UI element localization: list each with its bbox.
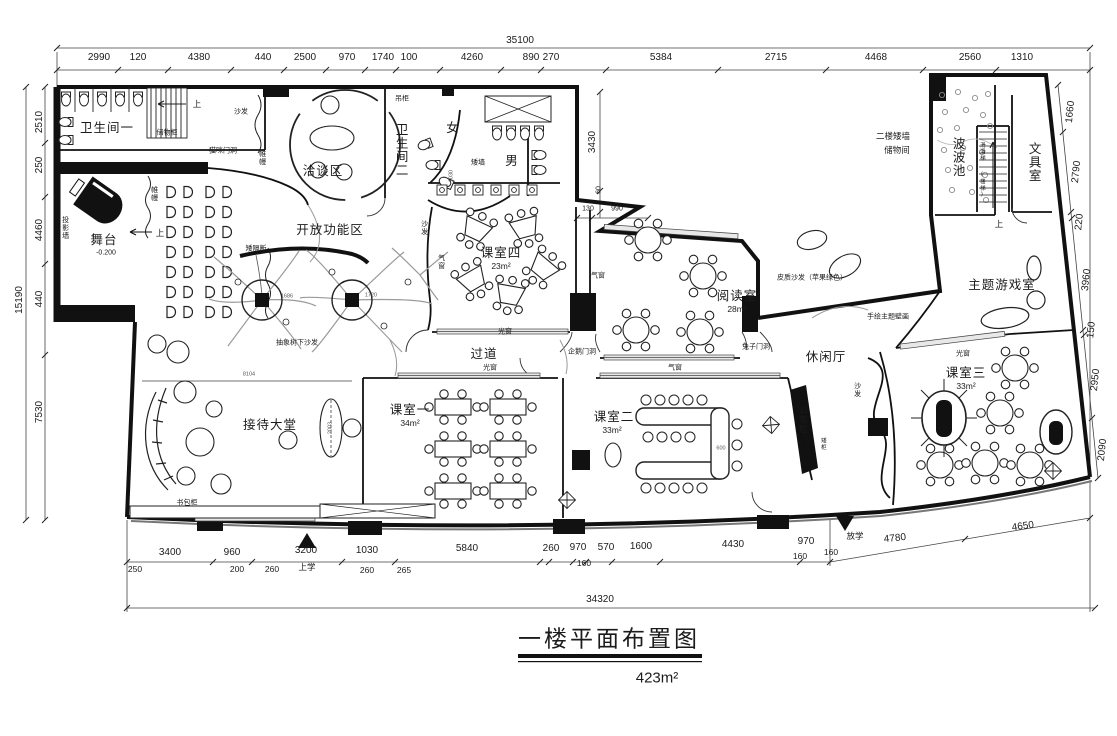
dim-bottom-5: 260 bbox=[543, 544, 560, 554]
room-classroom1-area: 34m² bbox=[400, 419, 419, 428]
dim-bottom-total: 34320 bbox=[586, 595, 614, 605]
negotiation-furniture bbox=[255, 90, 400, 200]
dim-bottom-10: 970 bbox=[798, 537, 815, 547]
ann-lightwin-2: 光窗 bbox=[483, 365, 497, 372]
dim-bottom-3: 1030 bbox=[356, 546, 378, 556]
ann-slide-stairs: (楼梯) bbox=[978, 172, 984, 199]
dim-left-1: 250 bbox=[35, 157, 45, 174]
dim-top-10: 270 bbox=[543, 53, 560, 63]
dim-right-4: 150 bbox=[1086, 321, 1098, 339]
dim-top-3: 440 bbox=[255, 53, 272, 63]
dim-right-2: 220 bbox=[1074, 213, 1086, 231]
room-classroom4-area: 23m² bbox=[491, 262, 510, 271]
dim-bsub-1: 200 bbox=[230, 565, 244, 574]
room-classroom2: 课室二 bbox=[594, 411, 635, 424]
dim-top-total: 35100 bbox=[506, 36, 534, 46]
ann-lightwin-1: 光窗 bbox=[498, 329, 512, 336]
dim-bottom-8: 1600 bbox=[630, 542, 652, 552]
ann-projection-wall: 投影墙 bbox=[61, 216, 68, 240]
room-reading: 阅读室 bbox=[717, 290, 758, 303]
dim-top-7: 100 bbox=[401, 53, 418, 63]
room-male: 男 bbox=[505, 155, 519, 168]
dim-top-12: 2715 bbox=[765, 53, 787, 63]
ann-tree-sofa: 抽象树下沙发 bbox=[276, 340, 318, 347]
dim-bottom-7: 570 bbox=[598, 543, 615, 553]
dim-1030: 1030 bbox=[449, 170, 455, 182]
stage-level: -0.200 bbox=[96, 250, 116, 257]
ann-storage-cabinet: 储物柜 bbox=[157, 130, 178, 137]
page-title: 一楼平面布置图 bbox=[518, 628, 700, 651]
dim-bsub-7: 160 bbox=[824, 548, 838, 557]
dim-bottom-2: 3200 bbox=[295, 546, 317, 556]
dim-top-9: 890 bbox=[523, 53, 540, 63]
dim-bottom-9: 4430 bbox=[722, 540, 744, 550]
dim-bottom-1: 960 bbox=[224, 548, 241, 558]
room-corridor: 过道 bbox=[470, 348, 497, 361]
dim-top-6: 1740 bbox=[372, 53, 394, 63]
dim-top-15: 1310 bbox=[1011, 53, 1033, 63]
room-ballpit: 波波池 bbox=[950, 137, 963, 178]
room-reading-area: 28m² bbox=[727, 305, 746, 314]
gameroom-furniture bbox=[980, 256, 1045, 331]
dim-60: 60 bbox=[596, 186, 603, 194]
room-leisure: 休闲厅 bbox=[806, 351, 847, 364]
ann-rabbit-door: 兔子门洞 bbox=[742, 344, 770, 351]
room-bathroom1: 卫生间一 bbox=[80, 122, 134, 135]
dim-bottom-4: 5840 bbox=[456, 544, 478, 554]
dim-2003: 2003 bbox=[328, 422, 334, 434]
room-classroom2-area: 33m² bbox=[602, 426, 621, 435]
room-stationery: 文具室 bbox=[1026, 142, 1039, 183]
room-storage2f-line2: 储物间 bbox=[884, 146, 910, 155]
ann-sofa-2: 沙发 bbox=[420, 220, 427, 236]
ann-up-slide: 上 bbox=[995, 220, 1004, 229]
ann-airwin-2: 气窗 bbox=[591, 273, 605, 280]
dim-left-0: 2510 bbox=[35, 111, 45, 133]
dim-bottom-6: 970 bbox=[570, 543, 587, 553]
room-reception: 接待大堂 bbox=[243, 419, 297, 432]
total-area: 423m² bbox=[636, 671, 679, 686]
room-classroom4: 课室四 bbox=[481, 247, 522, 260]
title-underline bbox=[518, 654, 702, 662]
dim-top-1: 120 bbox=[130, 53, 147, 63]
dim-top-4: 2500 bbox=[294, 53, 316, 63]
room-classroom1: 课室一 bbox=[390, 404, 431, 417]
room-negotiation: 洽谈区 bbox=[303, 165, 344, 178]
dim-3430: 3430 bbox=[588, 131, 598, 153]
room-game: 主题游戏室 bbox=[968, 279, 1036, 292]
classroom1-tables bbox=[425, 390, 576, 509]
ann-penguin-door: 企鹅门洞 bbox=[568, 349, 596, 356]
ann-go-school: 上学 bbox=[298, 563, 315, 572]
dim-bsub-6: 160 bbox=[793, 552, 807, 561]
floor-plan-page: 35100 2990 120 4380 440 2500 970 1740 10… bbox=[0, 0, 1117, 736]
ann-sofa-3: 沙发 bbox=[853, 382, 860, 398]
room-classroom3-area: 33m² bbox=[956, 382, 975, 391]
bathroom1-fixtures bbox=[59, 87, 143, 145]
dim-1686: 1686 bbox=[281, 294, 293, 300]
dim-top-11: 5384 bbox=[650, 53, 672, 63]
low-partition bbox=[240, 248, 368, 295]
room-female: 女 bbox=[446, 122, 460, 135]
ann-low-partition: 矮隔断 bbox=[246, 246, 267, 253]
dim-left-4: 7530 bbox=[35, 401, 45, 423]
ann-up-stairs: 上 bbox=[193, 100, 202, 109]
room-open-area: 开放功能区 bbox=[296, 224, 364, 237]
room-classroom3: 课室三 bbox=[946, 367, 987, 380]
ann-mural: 手绘主题壁画 bbox=[867, 314, 909, 321]
ann-sofa-1: 沙发 bbox=[234, 109, 248, 116]
ann-curtain-1: 帷幔 bbox=[258, 150, 265, 166]
dim-left-3: 440 bbox=[35, 291, 45, 308]
classroom3-furniture bbox=[911, 347, 1072, 486]
dim-bsub-0: 250 bbox=[128, 565, 142, 574]
dim-top-0: 2990 bbox=[88, 53, 110, 63]
ann-slide: 滑滑梯 bbox=[978, 142, 984, 162]
dim-left-total: 15190 bbox=[15, 286, 25, 314]
dim-top-2: 4380 bbox=[188, 53, 210, 63]
ann-low-wall: 矮墙 bbox=[471, 160, 485, 167]
ann-cat-door: 猫咪门洞 bbox=[209, 148, 237, 155]
ann-bulletin: 公告栏 bbox=[799, 406, 808, 435]
ann-up-stage: 上 bbox=[156, 229, 165, 238]
ann-lightwin-3: 光窗 bbox=[956, 351, 970, 358]
dim-bsub-5: 160 bbox=[577, 559, 591, 568]
ann-leave-school: 放学 bbox=[846, 532, 863, 541]
dim-990: 990 bbox=[611, 206, 623, 213]
dim-bsub-4: 265 bbox=[397, 566, 411, 575]
room-stage: 舞台 bbox=[90, 234, 117, 247]
dim-600: 600 bbox=[716, 446, 725, 452]
dim-8104: 8104 bbox=[243, 372, 255, 378]
room-storage2f-line1: 二楼矮墙 bbox=[876, 132, 910, 141]
ann-bag-cabinet: 书包柜 bbox=[177, 500, 198, 507]
room-bathroom2: 卫生间二 bbox=[393, 123, 406, 177]
dim-130: 130 bbox=[582, 206, 594, 213]
dim-left-2: 4460 bbox=[35, 219, 45, 241]
ann-leather-sofa: 皮质沙发（苹果绿色） bbox=[777, 275, 847, 282]
dim-top-13: 4468 bbox=[865, 53, 887, 63]
dim-top-8: 4260 bbox=[461, 53, 483, 63]
ann-hanging-cabinet: 吊柜 bbox=[395, 96, 409, 103]
ann-curtain-2: 帷幔 bbox=[150, 186, 157, 202]
ann-low-cabinet: 矮柜 bbox=[819, 438, 825, 451]
bathroom2-fixtures bbox=[417, 96, 551, 195]
ann-airwin-1: 气窗 bbox=[437, 254, 444, 270]
dim-top-14: 2560 bbox=[959, 53, 981, 63]
dim-bsub-2: 260 bbox=[265, 565, 279, 574]
ann-airwin-3: 气窗 bbox=[668, 365, 682, 372]
dim-bsub-3: 260 bbox=[360, 566, 374, 575]
dim-top-5: 970 bbox=[339, 53, 356, 63]
dim-bottom-0: 3400 bbox=[159, 548, 181, 558]
dim-1720: 1720 bbox=[365, 293, 377, 299]
audience-chairs bbox=[167, 187, 232, 318]
